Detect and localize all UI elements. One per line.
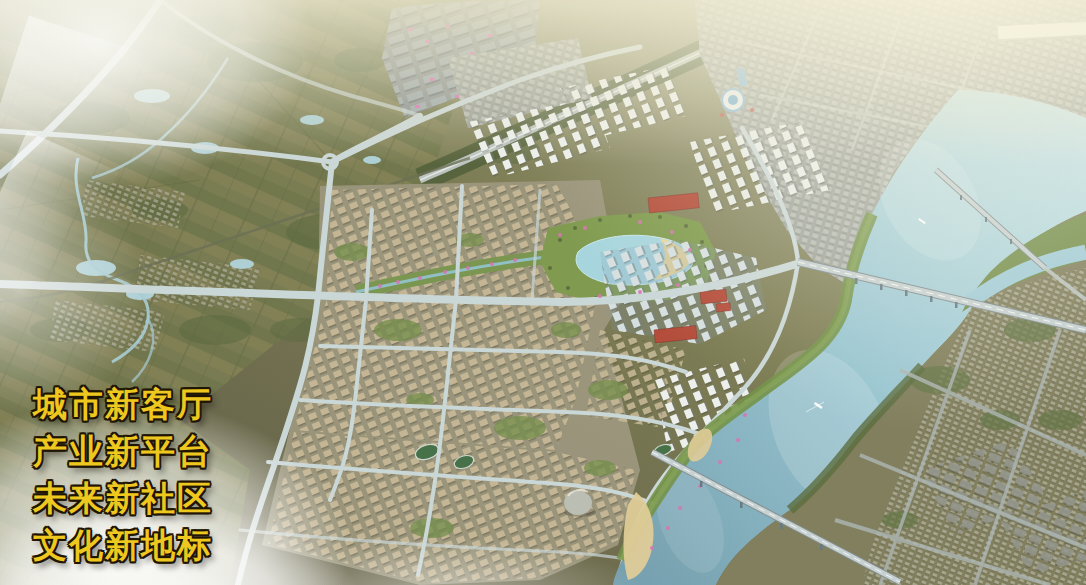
slogan-line-2: 产业新平台 bbox=[33, 428, 213, 475]
aerial-masterplan-rendering: 城市新客厅 产业新平台 未来新社区 文化新地标 bbox=[0, 0, 1086, 585]
slogan: 城市新客厅 产业新平台 未来新社区 文化新地标 bbox=[33, 381, 213, 569]
slogan-line-4: 文化新地标 bbox=[33, 522, 213, 569]
slogan-line-1: 城市新客厅 bbox=[33, 381, 213, 428]
slogan-line-3: 未来新社区 bbox=[33, 475, 213, 522]
